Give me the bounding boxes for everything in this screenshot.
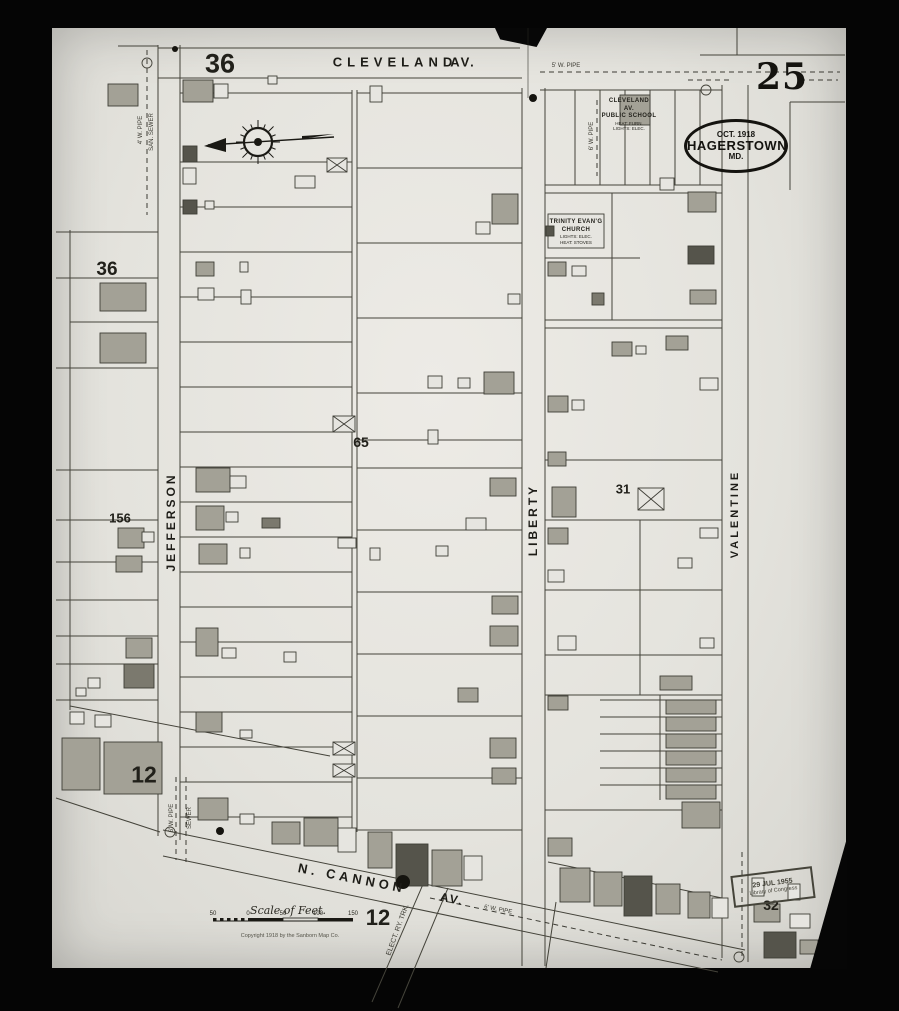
building	[196, 628, 218, 656]
scale-bar-hatch	[241, 918, 245, 921]
building	[198, 288, 214, 300]
building	[688, 892, 710, 918]
building	[712, 898, 728, 918]
building	[62, 738, 100, 790]
compass-spike	[242, 153, 247, 158]
building	[552, 487, 576, 517]
building	[688, 246, 714, 264]
building	[183, 200, 197, 214]
building	[428, 376, 442, 388]
building	[476, 222, 490, 234]
compass-spike	[269, 126, 274, 131]
building	[594, 872, 622, 906]
building	[370, 86, 382, 102]
building	[100, 283, 146, 311]
scale-bar-hatch	[220, 918, 224, 921]
scale-bar-segment	[248, 918, 283, 921]
scale-bar-segment	[318, 918, 353, 921]
building	[118, 528, 144, 548]
building	[240, 730, 252, 738]
building	[660, 676, 692, 690]
building	[548, 396, 568, 412]
building	[428, 430, 438, 444]
street-label-cleveland: CLEVELAND	[333, 55, 457, 70]
building	[230, 476, 246, 488]
building	[76, 688, 86, 696]
building	[548, 696, 568, 710]
building	[572, 400, 584, 410]
building	[205, 201, 214, 209]
building	[240, 262, 248, 272]
compass-hub	[254, 138, 262, 146]
street-label-liberty: LIBERTY	[526, 484, 540, 556]
building	[222, 648, 236, 658]
water-pipe-label: 4' W. PIPE	[138, 116, 144, 145]
lot-line	[546, 902, 556, 968]
building	[592, 293, 604, 305]
building	[490, 478, 516, 496]
building	[368, 832, 392, 868]
block-number-36: 36	[96, 259, 117, 281]
school-line: PUBLIC SCHOOL	[598, 113, 660, 121]
building	[338, 828, 356, 852]
block-number-36: 36	[205, 49, 235, 80]
building	[490, 626, 518, 646]
building	[198, 798, 228, 820]
building	[490, 738, 516, 758]
building	[370, 548, 380, 560]
building	[458, 378, 470, 388]
water-pipe-label: 5' W. PIPE	[552, 63, 581, 69]
building	[458, 688, 478, 702]
building	[304, 818, 338, 846]
street-label-cleveland-av: AV.	[450, 55, 476, 70]
building	[666, 785, 716, 799]
building	[558, 636, 576, 650]
church-line: TRINITY EVAN'G	[545, 219, 607, 227]
building	[700, 528, 718, 538]
school-line: LIGHTS: ELEC.	[598, 126, 660, 132]
building	[108, 84, 138, 106]
compass-spike	[251, 156, 253, 160]
utility-dot	[529, 94, 537, 102]
utility-dot	[172, 46, 178, 52]
sewer-label: SEWER	[187, 807, 193, 829]
building	[660, 178, 674, 190]
building	[666, 717, 716, 731]
building	[572, 266, 586, 276]
lot-line	[372, 882, 424, 1002]
building	[764, 932, 796, 958]
street-label-valentine: VALENTINE	[729, 470, 741, 559]
water-pipe-label: 6' W. PIPE	[169, 804, 175, 833]
building	[436, 546, 448, 556]
landmark-school: CLEVELAND AV. PUBLIC SCHOOL HEAT: FURN. …	[598, 98, 660, 132]
utility-dot	[216, 827, 224, 835]
copyright-line: Copyright 1918 by the Sanborn Map Co.	[200, 933, 380, 939]
building	[196, 506, 224, 530]
building	[678, 558, 692, 568]
building	[199, 544, 227, 564]
building	[272, 822, 300, 844]
building	[700, 378, 718, 390]
compass-arrowhead	[204, 138, 226, 152]
building	[682, 802, 720, 828]
building	[624, 876, 652, 916]
building	[100, 333, 146, 363]
building	[466, 518, 486, 530]
building	[548, 838, 572, 856]
street-label-jefferson: JEFFERSON	[164, 472, 178, 571]
block-number-156: 156	[109, 511, 131, 526]
scale-bar-hatch	[213, 918, 217, 921]
hagerstown-date-stamp: OCT. 1918 HAGERSTOWN MD.	[684, 119, 788, 173]
sewer-label: SAN. SEWER	[149, 113, 155, 151]
building	[70, 712, 84, 724]
stamp-city: HAGERSTOWN	[687, 139, 785, 153]
building	[612, 342, 632, 356]
building	[196, 712, 222, 732]
compass-spike	[264, 156, 266, 160]
block-number-12: 12	[366, 905, 390, 931]
compass-spike	[264, 124, 266, 128]
building	[88, 678, 100, 688]
building	[700, 638, 714, 648]
scanned-sanborn-map-page: 50050100150 CLEVELANDAV.JEFFERSONLIBERTY…	[0, 0, 899, 1011]
block-number-12: 12	[131, 762, 157, 789]
compass-spike	[272, 148, 276, 150]
building	[666, 734, 716, 748]
building	[295, 176, 315, 188]
block-number-65: 65	[353, 434, 369, 450]
building	[226, 512, 238, 522]
building	[790, 914, 810, 928]
building	[196, 262, 214, 276]
building	[214, 84, 228, 98]
building	[432, 850, 462, 886]
lot-line	[56, 798, 160, 832]
building	[124, 664, 154, 688]
building	[690, 290, 716, 304]
sheet-number: 25	[752, 56, 812, 98]
building	[183, 146, 197, 162]
building	[548, 570, 564, 582]
school-line: CLEVELAND	[598, 98, 660, 106]
building	[338, 538, 356, 548]
building	[636, 346, 646, 354]
compass-spike	[269, 153, 274, 158]
building	[262, 518, 280, 528]
scale-caption: Scale of Feet.	[208, 904, 368, 917]
building	[484, 372, 514, 394]
building	[666, 336, 688, 350]
building	[95, 715, 111, 727]
building	[492, 768, 516, 784]
building	[142, 532, 154, 542]
landmark-church: TRINITY EVAN'G CHURCH LIGHTS: ELEC. HEAT…	[545, 219, 607, 245]
building	[560, 868, 590, 902]
reference-circle	[734, 952, 744, 962]
building	[464, 856, 482, 880]
compass-spike	[272, 135, 276, 137]
building	[656, 884, 680, 914]
compass-spike	[242, 126, 247, 131]
compass-spike	[240, 135, 244, 137]
building	[183, 168, 196, 184]
building	[196, 468, 230, 492]
building	[666, 700, 716, 714]
compass-spike	[240, 148, 244, 150]
building	[548, 452, 566, 466]
scale-bar-hatch	[227, 918, 231, 921]
building	[492, 194, 518, 224]
block-number-31: 31	[616, 482, 630, 497]
stamp-state: MD.	[687, 153, 785, 161]
building	[548, 528, 568, 544]
church-line: HEAT: STOVES	[545, 240, 607, 246]
compass-spike	[251, 124, 253, 128]
building	[508, 294, 520, 304]
water-pipe-label: 6' W. PIPE	[589, 122, 595, 151]
building	[284, 652, 296, 662]
building	[126, 638, 152, 658]
building	[116, 556, 142, 572]
building	[492, 596, 518, 614]
building	[688, 192, 716, 212]
school-line: AV.	[598, 106, 660, 114]
building	[268, 76, 277, 84]
building	[240, 548, 250, 558]
church-line: CHURCH	[545, 227, 607, 235]
scale-bar-hatch	[234, 918, 238, 921]
building	[241, 290, 251, 304]
building	[666, 751, 716, 765]
building	[240, 814, 254, 824]
building	[666, 768, 716, 782]
building	[548, 262, 566, 276]
building	[183, 80, 213, 102]
